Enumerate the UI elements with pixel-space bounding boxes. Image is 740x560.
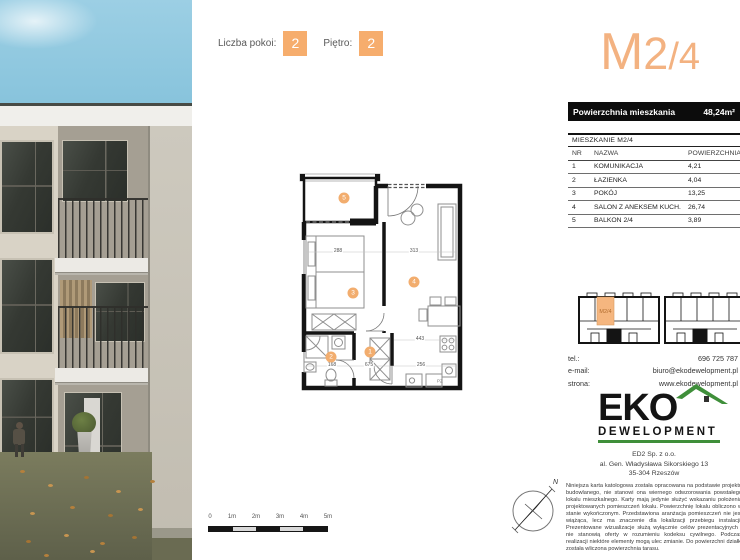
- contact-row: tel.: 696 725 787: [568, 352, 738, 365]
- autumn-leaves: [20, 470, 25, 473]
- grass-right: [148, 538, 192, 560]
- floor-label: Piętro:: [323, 38, 352, 49]
- balcony-slab-mid: [55, 368, 150, 385]
- row-nr: 3: [568, 190, 594, 197]
- email-label: e-mail:: [568, 366, 590, 375]
- email-value[interactable]: biuro@ekodewelopment.pl: [653, 366, 738, 375]
- scale-bar: 0 1m 2m 3m 4m 5m: [208, 514, 332, 536]
- room-table-title: MIESZKANIE M2/4: [568, 135, 740, 147]
- phone-label: tel.:: [568, 354, 580, 363]
- sidewalk-strip: [148, 528, 192, 538]
- area-bar-label: Powierzchnia mieszkania: [573, 107, 675, 117]
- rooms-label: Liczba pokoi:: [218, 38, 276, 49]
- row-nr: 4: [568, 204, 594, 211]
- child-figure-head: [16, 422, 23, 429]
- logo-roof-icon: [674, 382, 730, 412]
- child-figure-legs: [15, 444, 24, 457]
- title-number: 2: [643, 28, 668, 79]
- apartment-title: M2/4: [585, 22, 715, 82]
- row-nr: 5: [568, 217, 594, 224]
- room-marker-3: 3: [348, 288, 359, 299]
- room-marker-1: 1: [365, 347, 376, 358]
- appliance-label: PZ: [437, 379, 443, 384]
- company-address: ED2 Sp. z o.o. al. Gen. Władysława Sikor…: [568, 450, 740, 479]
- dimension-label: 675: [364, 362, 374, 368]
- dimension-label: 288: [333, 248, 343, 254]
- building-overview-drawing: M2/4: [577, 291, 740, 349]
- window-upper-left: [0, 140, 54, 234]
- col-area: POWIERZCHNIA: [688, 150, 740, 157]
- compass-rose: N: [506, 468, 564, 549]
- legal-disclaimer: Niniejsza karta katologowa została oprac…: [566, 483, 740, 553]
- scale-label: 1m: [228, 514, 236, 520]
- logo-green-rule: [598, 440, 720, 443]
- window-mid-left: [0, 258, 54, 354]
- floor-plan: PZ 288 313 443 168 675 256 1 2 3 4 5: [292, 166, 472, 396]
- balcony-railing-upper: [58, 198, 148, 260]
- address-line2: al. Gen. Władysława Sikorskiego 13: [568, 460, 740, 470]
- row-area: 13,25: [688, 190, 740, 197]
- row-nr: 2: [568, 177, 594, 184]
- dimension-label: 256: [416, 362, 426, 368]
- window-lower-left: [0, 378, 54, 458]
- rooms-value-badge: 2: [283, 31, 307, 56]
- logo-brand-text: EKO: [598, 390, 718, 426]
- area-bar-value: 48,24m²: [703, 107, 735, 117]
- scale-segment: [304, 527, 327, 531]
- scale-bar-segments: [208, 526, 328, 532]
- row-area: 4,04: [688, 177, 740, 184]
- room-marker-4: 4: [409, 277, 420, 288]
- building-overview-plan: M2/4: [577, 291, 740, 349]
- title-letter: M: [600, 23, 643, 81]
- balcony-door-upper: [62, 140, 128, 202]
- dimension-label: 168: [327, 362, 337, 368]
- scale-label: 3m: [276, 514, 284, 520]
- compass-icon: N: [506, 468, 564, 544]
- scale-segment: [257, 527, 280, 531]
- scale-segment: [209, 527, 232, 531]
- summary-row: Liczba pokoi: 2 Piętro: 2: [218, 30, 383, 56]
- table-row: 3 POKÓJ 13,25: [568, 188, 740, 202]
- north-label: N: [553, 479, 559, 486]
- highlighted-unit-label: M2/4: [599, 309, 611, 315]
- table-row: 2 ŁAZIENKA 4,04: [568, 174, 740, 188]
- total-area-bar: Powierzchnia mieszkania 48,24m²: [568, 102, 740, 121]
- row-name: KOMUNIKACJA: [594, 163, 688, 170]
- room-marker-5: 5: [339, 193, 350, 204]
- row-name: BALKON 2/4: [594, 217, 688, 224]
- scale-label: 2m: [252, 514, 260, 520]
- dimension-label: 443: [415, 336, 425, 342]
- company-logo: EKO DEWELOPMENT: [598, 390, 718, 443]
- col-nr: NR: [568, 150, 594, 157]
- table-row: 5 BALKON 2/4 3,89: [568, 215, 740, 229]
- scale-label: 4m: [300, 514, 308, 520]
- grass-lawn: [0, 452, 152, 560]
- table-row: 1 KOMUNIKACJA 4,21: [568, 161, 740, 175]
- row-name: SALON Z ANEKSEM KUCH.: [594, 204, 688, 211]
- row-area: 26,74: [688, 204, 740, 211]
- floor-value-badge: 2: [359, 31, 383, 56]
- dimension-label: 313: [409, 248, 419, 254]
- room-marker-2: 2: [326, 352, 337, 363]
- row-nr: 1: [568, 163, 594, 170]
- floor-plan-drawing: PZ: [292, 166, 472, 396]
- phone-value: 696 725 787: [698, 354, 738, 363]
- row-area: 4,21: [688, 163, 740, 170]
- address-line1: ED2 Sp. z o.o.: [568, 450, 740, 460]
- balcony-railing-mid: [58, 306, 148, 370]
- contact-row: e-mail: biuro@ekodewelopment.pl: [568, 365, 738, 378]
- scale-segment: [279, 527, 304, 531]
- scale-label: 0: [208, 514, 211, 520]
- scale-segment: [232, 527, 257, 531]
- row-area: 3,89: [688, 217, 740, 224]
- room-table-header: NR NAZWA POWIERZCHNIA: [568, 147, 740, 161]
- logo-brand: EKO: [598, 387, 677, 429]
- room-table: MIESZKANIE M2/4 NR NAZWA POWIERZCHNIA 1 …: [568, 133, 740, 228]
- address-line3: 35-304 Rzeszów: [568, 469, 740, 479]
- row-name: POKÓJ: [594, 190, 688, 197]
- col-name: NAZWA: [594, 150, 688, 157]
- balcony-slab-upper: [55, 258, 150, 275]
- child-figure: [13, 429, 25, 445]
- row-name: ŁAZIENKA: [594, 177, 688, 184]
- facade-right-wall: [148, 126, 192, 542]
- plant-bush: [72, 412, 96, 434]
- building-photo: [0, 0, 192, 560]
- table-row: 4 SALON Z ANEKSEM KUCH. 26,74: [568, 201, 740, 215]
- scale-label: 5m: [324, 514, 332, 520]
- website-label: strona:: [568, 379, 590, 388]
- catalog-card-page: Liczba pokoi: 2 Piętro: 2 M2/4 Powierzch…: [0, 0, 740, 560]
- sky: [0, 0, 192, 118]
- title-suffix: /4: [668, 36, 700, 78]
